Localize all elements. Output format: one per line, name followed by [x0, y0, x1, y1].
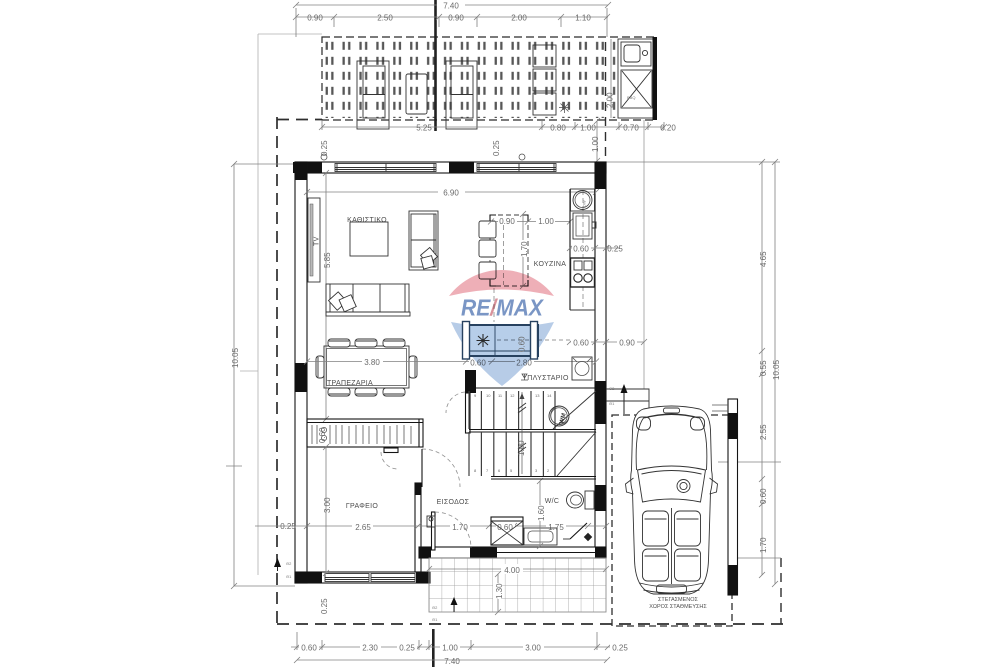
svg-text:0.60: 0.60	[518, 336, 527, 352]
svg-text:0.20: 0.20	[660, 124, 676, 133]
svg-text:1.75: 1.75	[548, 523, 564, 532]
svg-text:0.60: 0.60	[301, 644, 317, 653]
svg-text:1.70: 1.70	[759, 537, 768, 553]
svg-text:0.25: 0.25	[320, 598, 329, 614]
svg-text:0.25: 0.25	[492, 140, 501, 156]
svg-text:0.60: 0.60	[759, 488, 768, 504]
svg-text:ΓΡΑΦΕΙΟ: ΓΡΑΦΕΙΟ	[346, 503, 378, 510]
svg-text:4.65: 4.65	[759, 251, 768, 267]
svg-text:13: 13	[535, 393, 540, 398]
svg-text:12: 12	[510, 393, 515, 398]
svg-text:ΧΩΡΟΣ ΣΤΑΘΜΕΥΣΗΣ: ΧΩΡΟΣ ΣΤΑΘΜΕΥΣΗΣ	[649, 604, 707, 610]
svg-text:1.00: 1.00	[517, 440, 526, 456]
svg-text:0.60: 0.60	[573, 339, 589, 348]
svg-text:0.25: 0.25	[399, 644, 415, 653]
svg-text:7.40: 7.40	[444, 657, 460, 666]
svg-text:1.70: 1.70	[520, 241, 529, 257]
svg-text:1.00: 1.00	[442, 644, 458, 653]
svg-text:1.00: 1.00	[538, 217, 554, 226]
svg-text:5.25: 5.25	[416, 124, 432, 133]
svg-text:10.05: 10.05	[772, 359, 781, 380]
svg-text:ΚΑΘΙΣΤΙΚΟ: ΚΑΘΙΣΤΙΚΟ	[347, 217, 387, 224]
svg-text:0.60: 0.60	[573, 245, 589, 254]
svg-text:0.90: 0.90	[448, 14, 464, 23]
svg-text:0.90: 0.90	[307, 14, 323, 23]
svg-text:Θ2: Θ2	[432, 605, 438, 610]
svg-text:2.00: 2.00	[511, 14, 527, 23]
svg-text:0.60: 0.60	[318, 427, 327, 443]
svg-text:ΠΛΥΣΤΑΡΙΟ: ΠΛΥΣΤΑΡΙΟ	[527, 375, 569, 382]
svg-text:10: 10	[486, 393, 491, 398]
svg-text:1.30: 1.30	[495, 583, 504, 599]
svg-text:10.05: 10.05	[231, 347, 240, 368]
svg-text:1.10: 1.10	[575, 14, 591, 23]
svg-text:0.25: 0.25	[612, 644, 628, 653]
svg-text:Θ1: Θ1	[432, 617, 438, 622]
svg-text:3.00: 3.00	[323, 497, 332, 513]
svg-text:2.50: 2.50	[377, 14, 393, 23]
svg-text:1.00: 1.00	[580, 124, 596, 133]
svg-text:1.70: 1.70	[452, 523, 468, 532]
svg-text:0.25: 0.25	[607, 245, 623, 254]
svg-text:0.90: 0.90	[619, 339, 635, 348]
svg-text:DW: DW	[582, 200, 587, 207]
svg-text:W/C: W/C	[545, 498, 560, 505]
svg-text:6.90: 6.90	[443, 189, 459, 198]
svg-text:RE/MAX: RE/MAX	[461, 295, 545, 321]
svg-text:14: 14	[547, 393, 552, 398]
svg-text:ΚΟΥΖΙΝΑ: ΚΟΥΖΙΝΑ	[534, 261, 566, 268]
svg-text:ΣΤΕΓΑΣΜΕΝΟΣ: ΣΤΕΓΑΣΜΕΝΟΣ	[658, 597, 699, 603]
svg-text:3.80: 3.80	[364, 358, 380, 367]
svg-text:0.25: 0.25	[280, 522, 296, 531]
svg-text:Θ1: Θ1	[286, 574, 292, 579]
svg-text:2.30: 2.30	[362, 644, 378, 653]
svg-text:Θ1: Θ1	[609, 401, 615, 406]
svg-text:Θ2: Θ2	[609, 386, 615, 391]
svg-text:ΕΙΣΟΔΟΣ: ΕΙΣΟΔΟΣ	[437, 499, 470, 506]
svg-text:2.55: 2.55	[759, 424, 768, 440]
svg-text:0.70: 0.70	[623, 124, 639, 133]
svg-text:0.80: 0.80	[550, 124, 566, 133]
svg-text:TV: TV	[314, 236, 321, 246]
svg-text:5.85: 5.85	[323, 252, 332, 268]
svg-text:4.00: 4.00	[504, 566, 520, 575]
svg-text:Θ2: Θ2	[286, 561, 292, 566]
svg-text:0.55: 0.55	[759, 360, 768, 376]
svg-text:3.00: 3.00	[525, 644, 541, 653]
svg-text:ΤΡΑΠΕΖΑΡΙΑ: ΤΡΑΠΕΖΑΡΙΑ	[327, 380, 373, 387]
svg-text:7.40: 7.40	[443, 2, 459, 11]
svg-text:2.65: 2.65	[355, 523, 371, 532]
svg-text:2.00: 2.00	[606, 92, 615, 108]
svg-text:0.90: 0.90	[499, 217, 515, 226]
svg-text:BBQ: BBQ	[627, 95, 635, 100]
svg-text:1.60: 1.60	[537, 505, 546, 521]
svg-text:1.00: 1.00	[591, 136, 600, 152]
svg-text:0.25: 0.25	[320, 140, 329, 156]
